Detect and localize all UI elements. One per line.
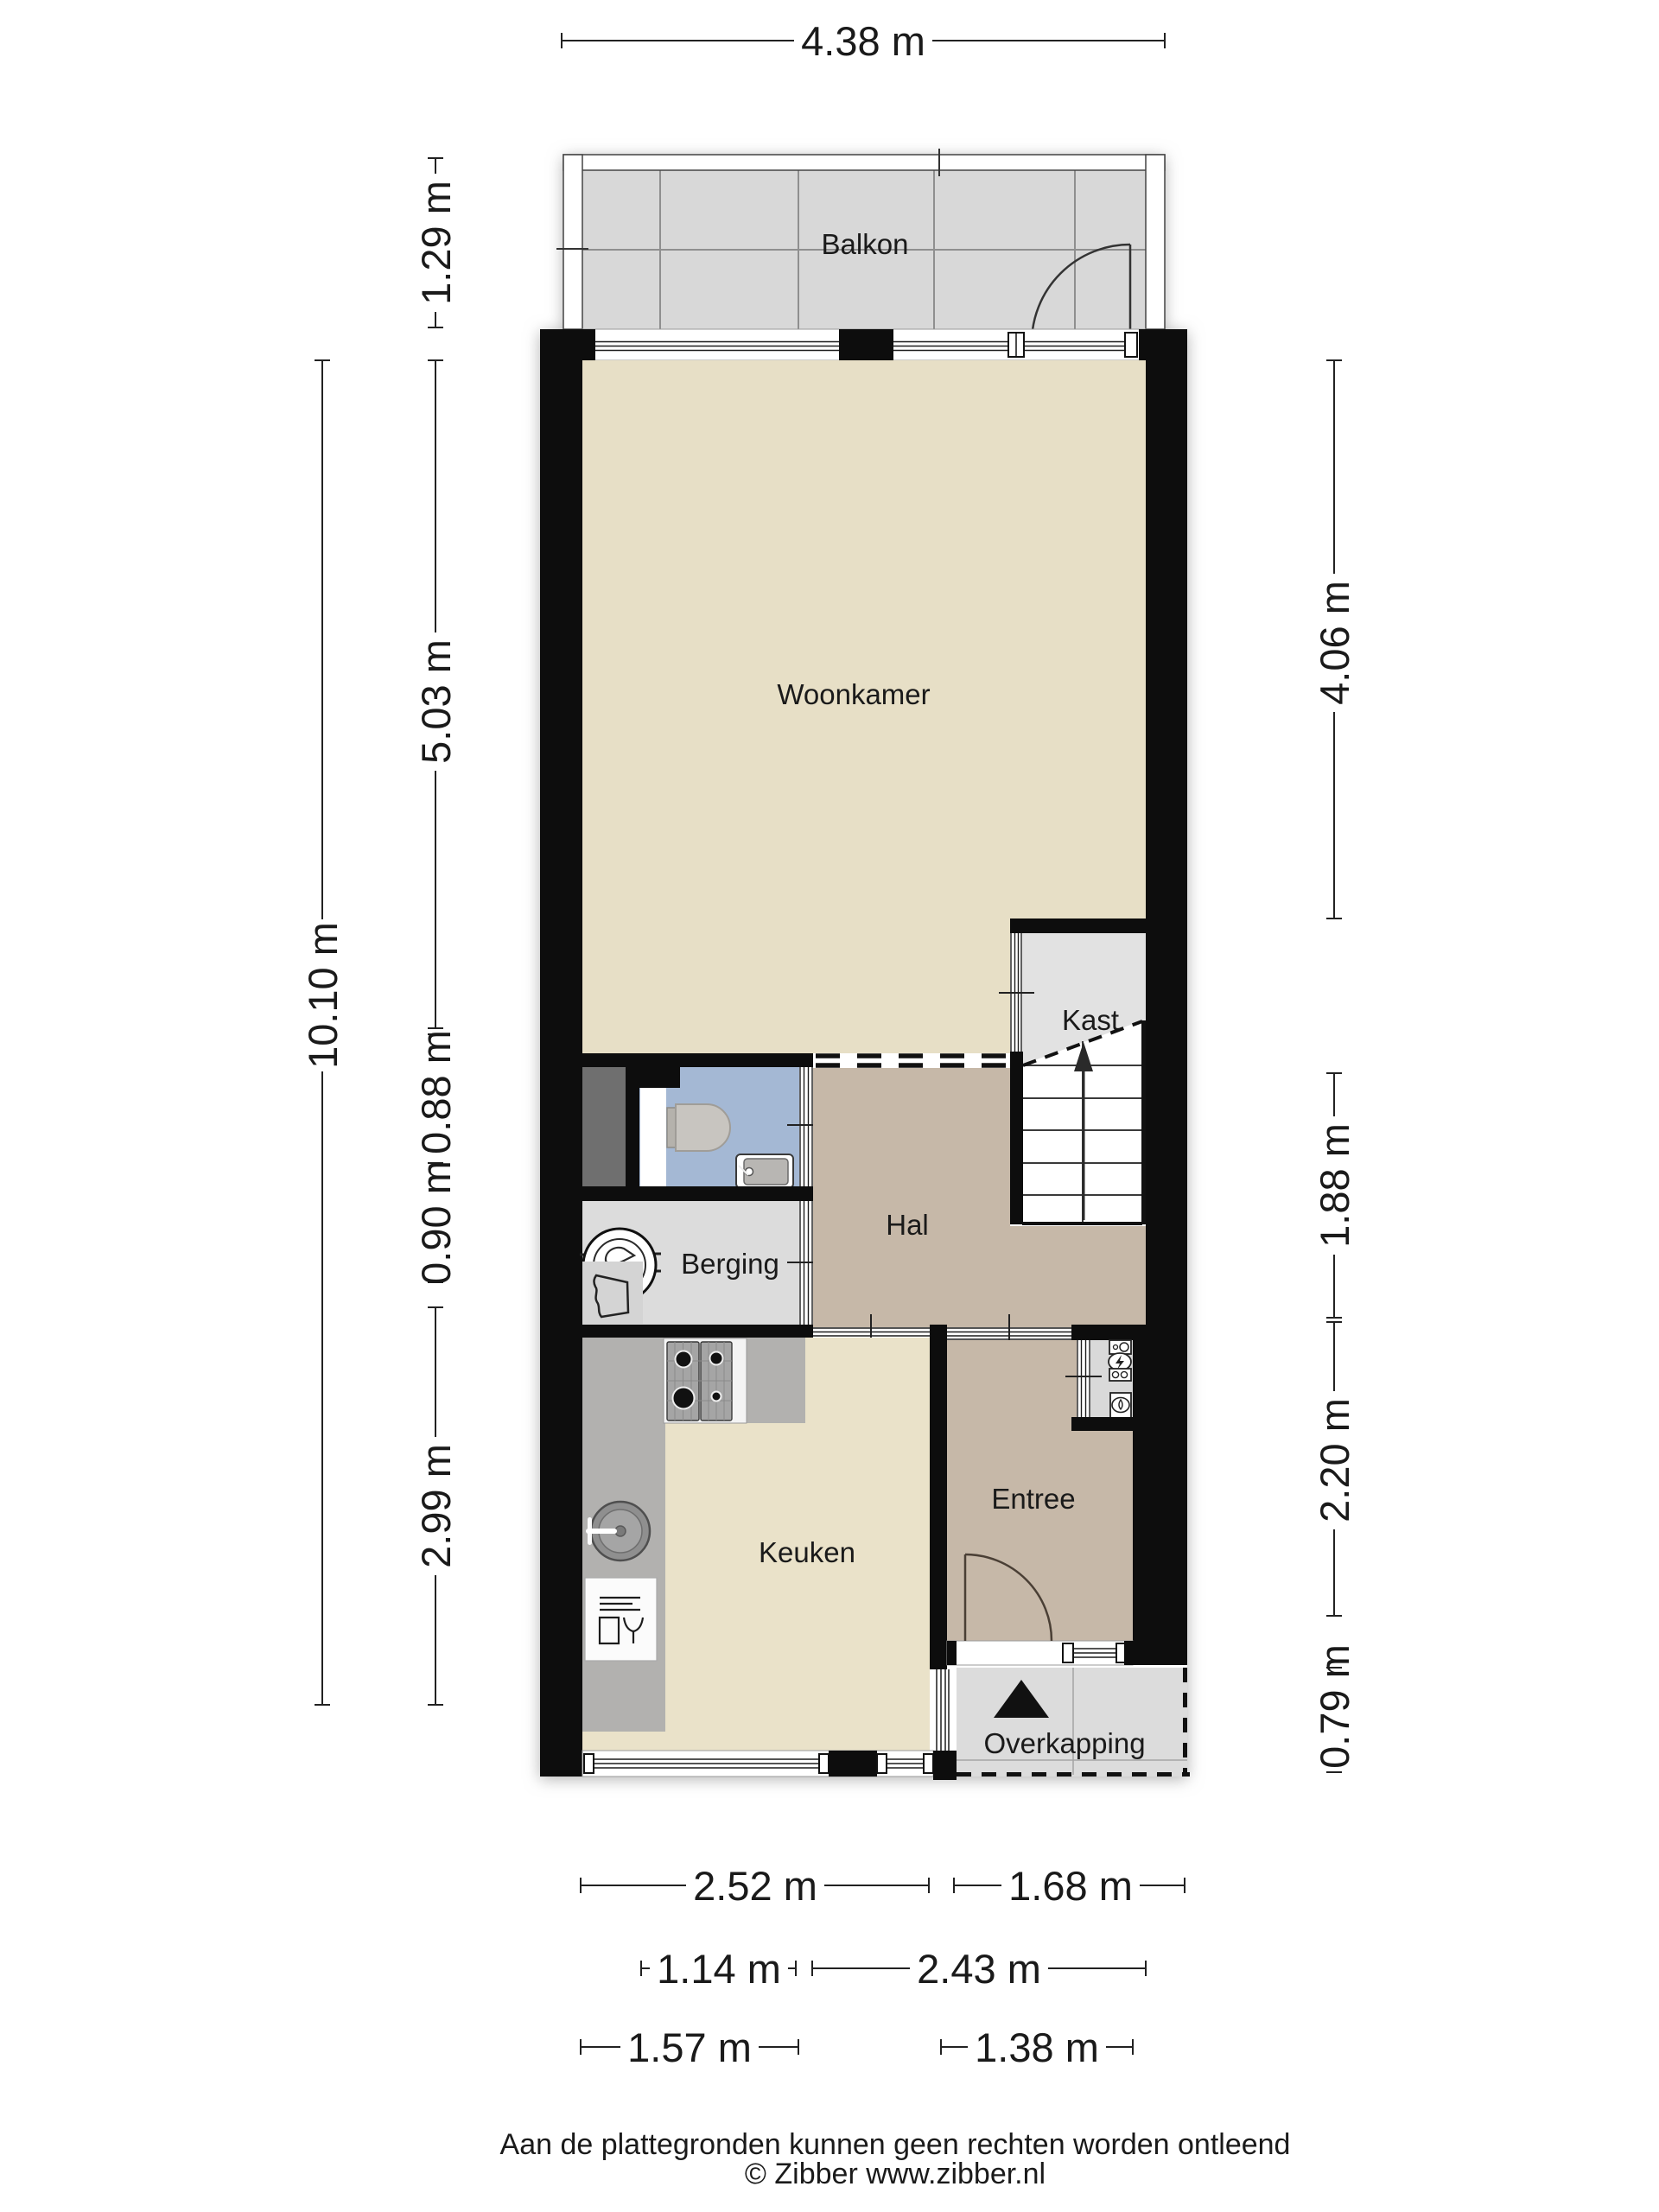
- svg-text:2.52 m: 2.52 m: [693, 1863, 817, 1909]
- svg-text:2.20 m: 2.20 m: [1312, 1398, 1357, 1522]
- svg-text:4.38 m: 4.38 m: [801, 18, 925, 64]
- svg-text:Entree: Entree: [991, 1483, 1075, 1515]
- svg-text:0.88 m: 0.88 m: [413, 1030, 459, 1154]
- svg-text:2.43 m: 2.43 m: [917, 1946, 1041, 1992]
- svg-text:Hal: Hal: [886, 1209, 929, 1241]
- svg-text:Kast: Kast: [1062, 1004, 1119, 1036]
- svg-text:Aan de plattegronden kunnen ge: Aan de plattegronden kunnen geen rechten…: [500, 2128, 1291, 2161]
- svg-text:0.90 m: 0.90 m: [413, 1160, 459, 1285]
- svg-text:1.38 m: 1.38 m: [975, 2024, 1099, 2070]
- svg-text:© Zibber www.zibber.nl: © Zibber www.zibber.nl: [745, 2158, 1046, 2190]
- svg-text:1.57 m: 1.57 m: [627, 2024, 752, 2070]
- svg-text:1.88 m: 1.88 m: [1312, 1123, 1357, 1248]
- svg-text:Balkon: Balkon: [822, 228, 909, 260]
- svg-text:4.06 m: 4.06 m: [1312, 581, 1357, 705]
- svg-text:Keuken: Keuken: [759, 1536, 855, 1568]
- svg-text:Overkapping: Overkapping: [983, 1727, 1145, 1759]
- svg-text:1.68 m: 1.68 m: [1008, 1863, 1133, 1909]
- svg-text:1.14 m: 1.14 m: [657, 1946, 781, 1992]
- svg-text:5.03 m: 5.03 m: [413, 639, 459, 764]
- svg-text:10.10 m: 10.10 m: [300, 922, 346, 1069]
- svg-text:2.99 m: 2.99 m: [413, 1444, 459, 1568]
- svg-text:Berging: Berging: [681, 1248, 779, 1280]
- svg-text:0.79 m: 0.79 m: [1312, 1644, 1357, 1769]
- svg-text:Woonkamer: Woonkamer: [777, 678, 930, 710]
- svg-text:1.29 m: 1.29 m: [413, 181, 459, 305]
